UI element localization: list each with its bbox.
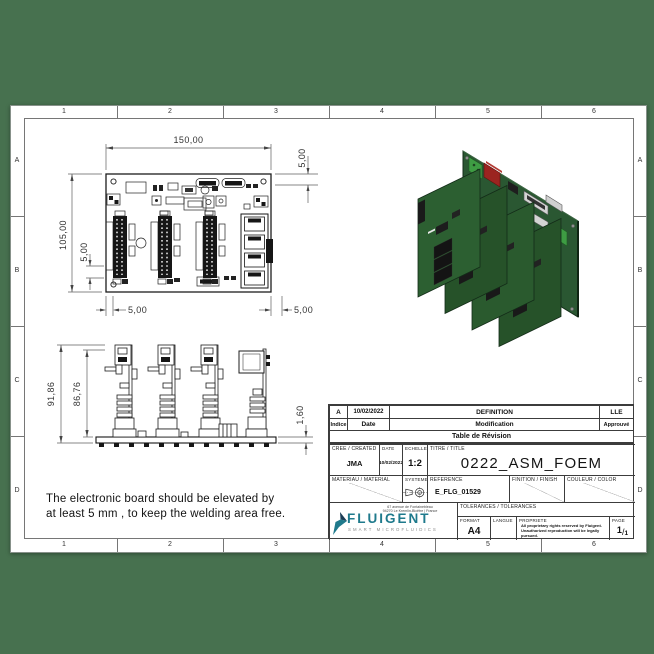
finition-label: FINITION / FINISH <box>510 476 557 483</box>
front-view-card-towers <box>105 345 270 437</box>
drawing-sheet: 1 2 3 4 5 6 1 2 3 4 5 6 A B C D A B C D <box>10 105 647 553</box>
page-value: 1/1 <box>610 523 635 540</box>
title-block: CREE / CREATED JMA DATE 10/02/2022 ECHEL… <box>328 443 634 539</box>
titleblock-cell-logo: 67 avenue de Fontainebleau 94270 Le Krem… <box>329 502 457 540</box>
grid-row-label: D <box>9 485 25 497</box>
grid-col-label: 6 <box>586 539 602 551</box>
top-view-card-columns <box>106 211 225 284</box>
top-view-rj45-block <box>241 214 273 288</box>
page-number: 1 <box>617 525 622 535</box>
dim-margin-bottom-right: 5,00 <box>294 305 313 315</box>
grid-tick-line <box>435 539 436 552</box>
revision-table: A 10/02/2022 DEFINITION LLE Indice Date … <box>328 404 634 443</box>
titleblock-cell-propriete: PROPRIETE All proprietary rights reserve… <box>516 516 609 540</box>
grid-tick-line <box>11 326 24 327</box>
revision-modification-value: DEFINITION <box>389 405 599 418</box>
front-view-drawing: 91,86 86,76 1,60 <box>41 331 326 461</box>
dim-board-width: 150,00 <box>174 135 204 145</box>
revision-table-caption: Table de Révision <box>329 430 633 442</box>
dim-total-height: 91,86 <box>46 382 56 407</box>
grid-tick-line <box>541 539 542 552</box>
titleblock-cell-echelle: ECHELLE 1:2 <box>402 444 427 475</box>
front-view-base-board <box>96 437 276 447</box>
grid-row-label: C <box>9 375 25 387</box>
grid-row-label: A <box>9 155 25 167</box>
titleblock-cell-materiau: MATERIAU / MATERIAL <box>329 475 402 502</box>
grid-tick-line <box>11 436 24 437</box>
dim-margin-top: 5,00 <box>297 148 307 167</box>
page-total: 1 <box>624 530 628 537</box>
fluigent-logo-tagline: SMART MICROFLUIDICS <box>348 527 438 532</box>
grid-col-label: 3 <box>268 106 284 118</box>
revision-indice-header: Indice <box>329 418 347 430</box>
iso-view-3d-render <box>396 129 636 369</box>
projection-symbol-icon <box>403 485 427 500</box>
reference-label: REFERENCE <box>428 476 509 483</box>
grid-col-label: 1 <box>56 106 72 118</box>
revision-date-header: Date <box>347 418 389 430</box>
grid-col-label: 2 <box>162 106 178 118</box>
titleblock-cell-langue: LANGUE <box>490 516 516 540</box>
grid-col-label: 3 <box>268 539 284 551</box>
grid-tick-line <box>223 106 224 118</box>
grid-row-label: C <box>632 375 648 387</box>
grid-col-label: 5 <box>480 539 496 551</box>
grid-col-label: 5 <box>480 106 496 118</box>
grid-tick-line <box>329 539 330 552</box>
cree-label: CREE / CREATED <box>330 445 379 452</box>
dim-margin-left: 5,00 <box>79 242 89 261</box>
grid-tick-line <box>634 436 646 437</box>
revision-approuve-value: LLE <box>599 405 633 418</box>
echelle-value: 1:2 <box>403 451 427 475</box>
grid-col-label: 4 <box>374 539 390 551</box>
note-line-2: at least 5 mm , to keep the welding area… <box>46 507 285 522</box>
titre-label: TITRE / TITLE <box>428 445 635 452</box>
drawing-title: 0222_ASM_FOEM <box>428 452 635 475</box>
materiau-label: MATERIAU / MATERIAL <box>330 476 390 483</box>
titleblock-cell-couleur: COULEUR / COLOR <box>564 475 635 502</box>
grid-tick-line <box>11 216 24 217</box>
reference-value: E_FLG_01529 <box>428 483 509 502</box>
revision-approuve-header: Approuvé <box>599 418 633 430</box>
titleblock-cell-titre: TITRE / TITLE 0222_ASM_FOEM <box>427 444 635 475</box>
tolerances-label: TOLERANCES / TOLERANCES <box>458 503 635 510</box>
revision-indice-value: A <box>329 405 347 418</box>
grid-col-label: 2 <box>162 539 178 551</box>
grid-tick-line <box>117 539 118 552</box>
top-view-drawing: 150,00 105,00 5,00 5,00 5,00 5,00 <box>56 126 356 321</box>
grid-tick-line <box>223 539 224 552</box>
grid-tick-line <box>117 106 118 118</box>
grid-row-label: B <box>9 265 25 277</box>
revision-date-value: 10/02/2022 <box>347 405 389 418</box>
titleblock-cell-format: FORMAT A4 <box>457 516 490 540</box>
grid-col-label: 4 <box>374 106 390 118</box>
date-value: 10/02/2022 <box>380 451 402 475</box>
cree-value: JMA <box>330 452 379 475</box>
dim-margin-bottom-left: 5,00 <box>128 305 147 315</box>
grid-col-label: 1 <box>56 539 72 551</box>
titleblock-cell-page: PAGE 1/1 <box>609 516 635 540</box>
titleblock-cell-date: DATE 10/02/2022 <box>379 444 402 475</box>
titleblock-cell-systeme: SYSTEME <box>402 475 427 502</box>
note-line-1: The electronic board should be elevated … <box>46 492 285 507</box>
dim-card-height: 86,76 <box>72 382 82 407</box>
dim-board-thickness: 1,60 <box>295 405 305 424</box>
titleblock-cell-tolerances: TOLERANCES / TOLERANCES <box>457 502 635 516</box>
revision-modification-header: Modification <box>389 418 599 430</box>
couleur-label: COULEUR / COLOR <box>565 476 616 483</box>
grid-tick-line <box>329 106 330 118</box>
fluigent-logo-icon <box>333 512 348 536</box>
titleblock-cell-cree: CREE / CREATED JMA <box>329 444 379 475</box>
format-value: A4 <box>458 523 490 540</box>
propriete-text-line-2: Unauthorized reproduction will be legall… <box>517 528 609 538</box>
grid-col-label: 6 <box>586 106 602 118</box>
titleblock-cell-reference: REFERENCE E_FLG_01529 <box>427 475 509 502</box>
dim-board-height: 105,00 <box>58 220 68 250</box>
elevation-note: The electronic board should be elevated … <box>46 492 285 522</box>
iso-daughter-cards <box>418 169 561 347</box>
grid-tick-line <box>435 106 436 118</box>
fluigent-logo-wordmark: FLUIGENT <box>347 511 431 526</box>
grid-tick-line <box>541 106 542 118</box>
langue-label: LANGUE <box>491 517 516 523</box>
drawing-viewport: 1 2 3 4 5 6 1 2 3 4 5 6 A B C D A B C D <box>0 0 654 654</box>
titleblock-cell-finition: FINITION / FINISH <box>509 475 564 502</box>
